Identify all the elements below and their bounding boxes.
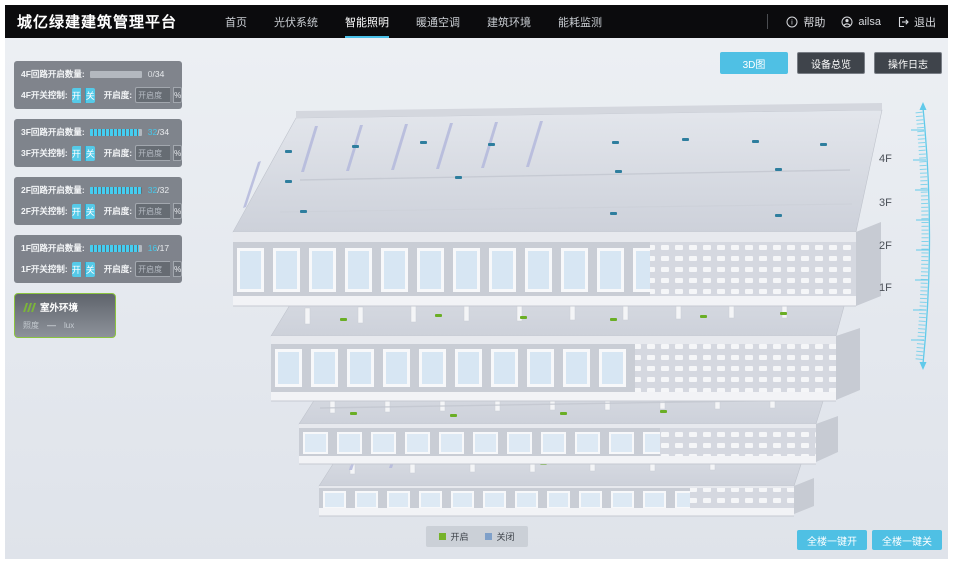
user-name: ailsa (858, 16, 881, 28)
logout-icon (897, 16, 909, 28)
floor-panel-4f: 4F回路开启数量: 0/34 4F开关控制: 开 关 开启度: % (14, 61, 182, 109)
nav-item-energy-monitor[interactable]: 能耗监测 (558, 5, 602, 38)
switch-off-button[interactable]: 关 (85, 204, 95, 219)
all-on-button[interactable]: 全楼一键开 (797, 530, 867, 550)
main-menu: 首页 光伏系统 智能照明 暖通空调 建筑环境 能耗监测 (225, 5, 602, 38)
openness-input[interactable] (135, 203, 170, 219)
logout-label: 退出 (914, 14, 936, 30)
circuit-count-value: 16/17 (148, 243, 169, 253)
illuminance-label: 照度 (23, 320, 39, 331)
legend-on-item: 开启 (438, 530, 468, 543)
percent-button[interactable]: % (173, 87, 182, 103)
openness-input[interactable] (135, 261, 170, 277)
switch-on-button[interactable]: 开 (72, 88, 81, 103)
switch-off-button[interactable]: 关 (85, 146, 95, 161)
user-button[interactable]: ailsa (841, 16, 881, 28)
floor-label-3f: 3F (879, 197, 892, 209)
outdoor-env-title: 室外环境 (40, 300, 78, 314)
circuit-count-value: 32/34 (148, 127, 169, 137)
floor-zoom-ruler[interactable] (911, 102, 930, 370)
operation-log-button[interactable]: 操作日志 (874, 52, 942, 74)
floor-4f-model (233, 103, 882, 306)
view-3d-button[interactable]: 3D图 (720, 52, 788, 74)
switch-on-button[interactable]: 开 (72, 204, 81, 219)
legend-off-item: 关闭 (485, 530, 515, 543)
floor-label-2f: 2F (879, 240, 892, 252)
percent-button[interactable]: % (173, 261, 182, 277)
illuminance-unit: lux (64, 321, 74, 330)
floor-panel-1f: 1F回路开启数量: 16/17 1F开关控制: 开 关 开启度: % (14, 235, 182, 283)
legend-off-swatch (485, 533, 492, 540)
all-off-button[interactable]: 全楼一键关 (872, 530, 942, 550)
logout-button[interactable]: 退出 (897, 14, 936, 30)
floor-panel-2f: 2F回路开启数量: 32/32 2F开关控制: 开 关 开启度: % (14, 177, 182, 225)
legend-off-label: 关闭 (497, 530, 515, 543)
nav-item-building-env[interactable]: 建筑环境 (487, 5, 531, 38)
circuit-count-label: 1F回路开启数量: (21, 242, 85, 254)
switch-control-label: 3F开关控制: (21, 147, 68, 159)
percent-button[interactable]: % (173, 145, 182, 161)
circuit-count-label: 3F回路开启数量: (21, 126, 85, 138)
circuit-count-value: 0/34 (148, 69, 165, 79)
app-title: 城亿绿建建筑管理平台 (17, 11, 177, 32)
switch-on-button[interactable]: 开 (72, 262, 81, 277)
switch-control-label: 2F开关控制: (21, 205, 68, 217)
top-navbar: 城亿绿建建筑管理平台 首页 光伏系统 智能照明 暖通空调 建筑环境 能耗监测 i… (5, 5, 948, 38)
percent-button[interactable]: % (173, 203, 182, 219)
switch-control-label: 4F开关控制: (21, 89, 68, 101)
circuit-count-value: 32/32 (148, 185, 169, 195)
nav-item-pv-system[interactable]: 光伏系统 (274, 5, 318, 38)
switch-control-label: 1F开关控制: (21, 263, 68, 275)
openness-input[interactable] (135, 87, 170, 103)
circuit-count-label: 2F回路开启数量: (21, 184, 85, 196)
floor-label-4f: 4F (879, 153, 892, 165)
app-window: 城亿绿建建筑管理平台 首页 光伏系统 智能照明 暖通空调 建筑环境 能耗监测 i… (0, 0, 953, 564)
nav-item-hvac[interactable]: 暖通空调 (416, 5, 460, 38)
nav-item-smart-lighting[interactable]: 智能照明 (345, 5, 389, 38)
openness-label: 开启度: (104, 263, 132, 275)
openness-label: 开启度: (104, 147, 132, 159)
svg-text:i: i (792, 17, 794, 26)
illuminance-value: — (47, 320, 56, 330)
navbar-divider (767, 14, 768, 29)
outdoor-env-panel: 室外环境 照度 — lux (14, 293, 116, 338)
legend-on-label: 开启 (450, 530, 468, 543)
openness-input[interactable] (135, 145, 170, 161)
openness-label: 开启度: (104, 205, 132, 217)
user-icon (841, 16, 853, 28)
help-label: 帮助 (803, 14, 825, 30)
nav-item-home[interactable]: 首页 (225, 5, 247, 38)
switch-on-button[interactable]: 开 (72, 146, 81, 161)
circuit-progress-bar (90, 129, 142, 136)
view-toolbar: 3D图 设备总览 操作日志 (720, 52, 942, 74)
circuit-progress-bar (90, 245, 142, 252)
help-button[interactable]: i 帮助 (786, 14, 825, 30)
navbar-right: i 帮助 ailsa 退出 (767, 14, 936, 30)
light-status-legend: 开启 关闭 (425, 526, 527, 547)
floor-panel-3f: 3F回路开启数量: 32/34 3F开关控制: 开 关 开启度: % (14, 119, 182, 167)
building-actions: 全楼一键开 全楼一键关 (797, 530, 942, 550)
openness-label: 开启度: (104, 89, 132, 101)
legend-on-swatch (438, 533, 445, 540)
switch-off-button[interactable]: 关 (85, 88, 95, 103)
circuit-count-label: 4F回路开启数量: (21, 68, 85, 80)
outdoor-env-icon (23, 303, 36, 312)
device-overview-button[interactable]: 设备总览 (797, 52, 865, 74)
circuit-progress-bar (90, 187, 142, 194)
circuit-progress-fill (90, 129, 139, 136)
floor-label-1f: 1F (879, 282, 892, 294)
circuit-progress-bar (90, 71, 142, 78)
circuit-progress-fill (90, 245, 139, 252)
circuit-progress-fill (90, 187, 142, 194)
switch-off-button[interactable]: 关 (85, 262, 95, 277)
floor-control-sidebar: 4F回路开启数量: 0/34 4F开关控制: 开 关 开启度: % 3F回路开启… (14, 61, 182, 338)
help-icon: i (786, 16, 798, 28)
